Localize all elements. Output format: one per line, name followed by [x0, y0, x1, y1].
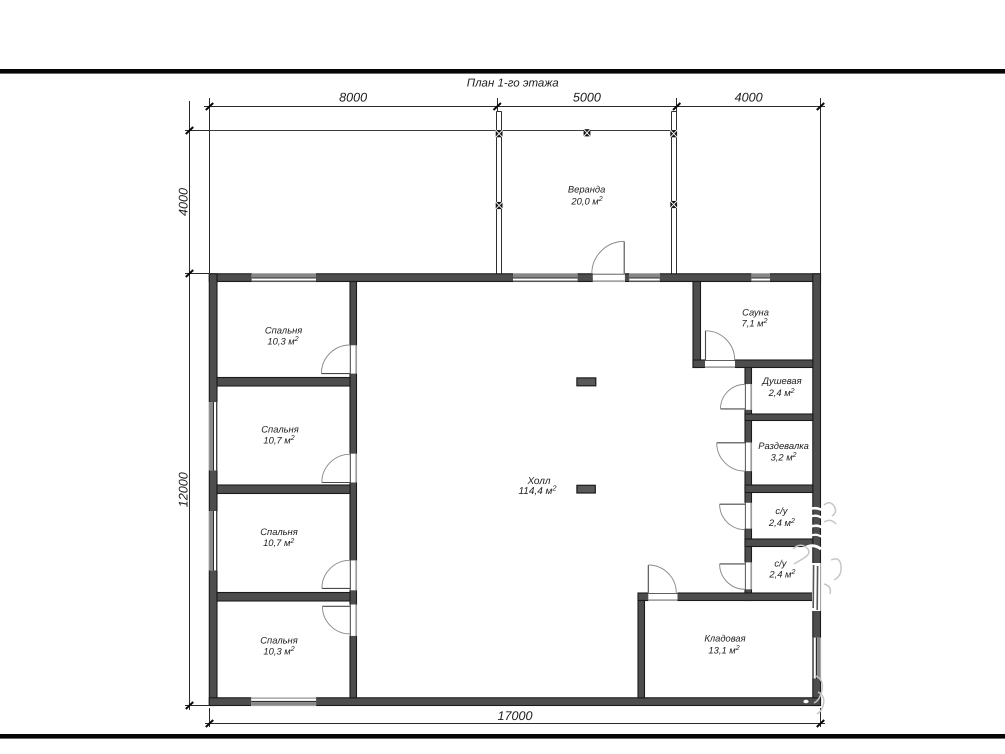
svg-text:План 1-го этажа: План 1-го этажа	[467, 78, 559, 90]
svg-text:2,4 м2: 2,4 м2	[768, 569, 795, 580]
svg-text:Спальня: Спальня	[260, 634, 297, 645]
svg-text:10,3 м2: 10,3 м2	[267, 335, 298, 346]
svg-text:10,3 м2: 10,3 м2	[263, 646, 294, 657]
svg-text:с/у: с/у	[774, 558, 787, 569]
svg-text:Спальня: Спальня	[261, 424, 298, 435]
svg-text:с/у: с/у	[775, 505, 788, 516]
svg-text:Спальня: Спальня	[260, 526, 297, 537]
svg-text:Веранда: Веранда	[568, 183, 605, 194]
svg-text:20,0 м2: 20,0 м2	[570, 195, 602, 206]
svg-text:5000: 5000	[573, 91, 601, 105]
svg-text:10,7 м2: 10,7 м2	[263, 537, 294, 548]
svg-text:4000: 4000	[735, 91, 763, 105]
svg-text:Кладовая: Кладовая	[704, 633, 745, 644]
svg-text:114,4 м2: 114,4 м2	[518, 483, 556, 497]
svg-text:12000: 12000	[177, 472, 191, 507]
svg-text:10,7 м2: 10,7 м2	[263, 435, 294, 446]
svg-text:Спальня: Спальня	[265, 324, 302, 335]
svg-text:Сауна: Сауна	[742, 307, 769, 318]
svg-text:13,1 м2: 13,1 м2	[708, 645, 739, 656]
svg-text:Душевая: Душевая	[761, 375, 801, 386]
svg-text:2,4 м2: 2,4 м2	[768, 517, 795, 528]
svg-text:8000: 8000	[339, 91, 367, 105]
svg-text:4000: 4000	[177, 188, 191, 216]
svg-text:2,4 м2: 2,4 м2	[768, 387, 795, 398]
svg-text:17000: 17000	[497, 709, 532, 723]
svg-text:Раздевалка: Раздевалка	[758, 440, 809, 451]
